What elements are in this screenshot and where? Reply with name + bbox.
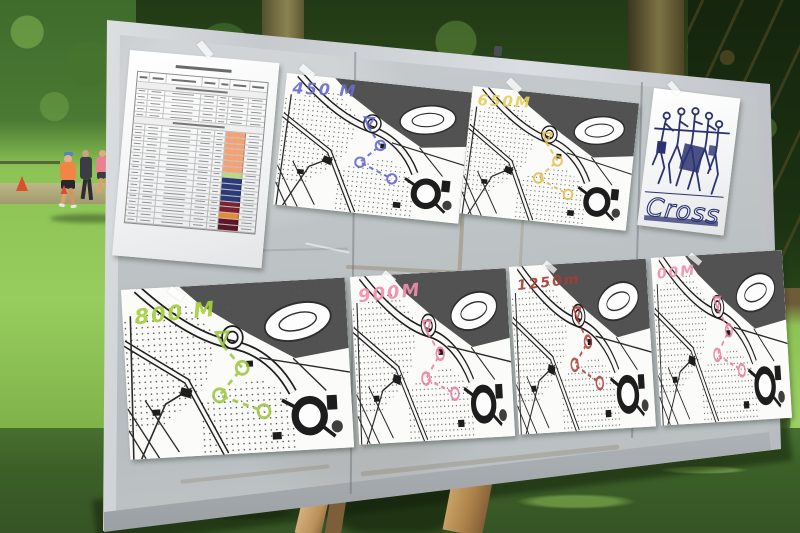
table-cell xyxy=(217,113,228,119)
cross-poster-paper: Cross xyxy=(637,88,740,236)
map-paper-800m: 800 M xyxy=(121,277,354,459)
table-cell xyxy=(213,148,224,154)
traffic-cone xyxy=(16,176,28,191)
table-cell xyxy=(210,188,221,194)
map-paper-450m: 450 M xyxy=(273,73,472,224)
distance-label: 450 M xyxy=(292,78,358,100)
table-cell xyxy=(208,206,219,212)
shaded-area xyxy=(656,141,666,154)
header-cell xyxy=(230,80,250,91)
table-cell xyxy=(212,160,223,166)
tree-trunk xyxy=(628,0,684,78)
distance-label: 650M xyxy=(477,91,532,112)
leg xyxy=(68,188,75,206)
table-cell xyxy=(209,200,220,206)
table-cell xyxy=(207,223,218,229)
map-paper-00m: 00M xyxy=(651,250,792,426)
table-cell xyxy=(217,107,228,113)
header-cell xyxy=(219,79,231,89)
shaded-area xyxy=(679,143,704,173)
traffic-cone xyxy=(60,185,67,194)
table-cell xyxy=(134,111,147,117)
table-cell xyxy=(137,217,154,223)
leg xyxy=(87,179,93,200)
torso xyxy=(80,157,92,179)
table-cell xyxy=(214,142,225,148)
table-cell xyxy=(237,226,255,232)
color-swatch-cell xyxy=(218,224,238,230)
fence-rail xyxy=(0,161,60,164)
header-cell xyxy=(250,82,268,92)
frame-clamp xyxy=(493,46,502,57)
map-paper-650m: 650M xyxy=(460,86,639,231)
header-cell xyxy=(149,73,167,83)
table-cell xyxy=(218,101,229,107)
header-cell xyxy=(202,77,220,87)
table-cell xyxy=(207,217,218,223)
table-cell xyxy=(213,154,224,160)
table-cell xyxy=(211,177,222,183)
table-cell xyxy=(211,171,222,177)
results-table-body xyxy=(125,82,267,233)
table-cell xyxy=(125,216,138,222)
map-paper-900m: 900M xyxy=(350,268,515,444)
table-cell xyxy=(190,222,207,228)
table-cell xyxy=(218,95,229,101)
photo-of-notice-board: 450 M 650M 800 M xyxy=(0,0,800,533)
table-cell xyxy=(216,118,227,124)
table-cell xyxy=(208,212,219,218)
leg xyxy=(96,178,103,194)
table-cell xyxy=(215,131,226,137)
table-cell xyxy=(212,165,223,171)
table-cell xyxy=(209,194,220,200)
results-table xyxy=(124,71,269,234)
shaded-area xyxy=(708,145,717,156)
cross-poster-art: Cross xyxy=(637,88,740,236)
head xyxy=(82,150,89,157)
sheet-title-line xyxy=(176,65,232,73)
results-sheet-paper xyxy=(112,50,279,268)
torso xyxy=(59,161,76,181)
cross-title: Cross xyxy=(645,192,722,230)
map-paper-1250m: 1250m xyxy=(509,259,656,435)
table-cell xyxy=(215,137,226,143)
header-cell xyxy=(137,72,150,82)
table-cell xyxy=(210,183,221,189)
